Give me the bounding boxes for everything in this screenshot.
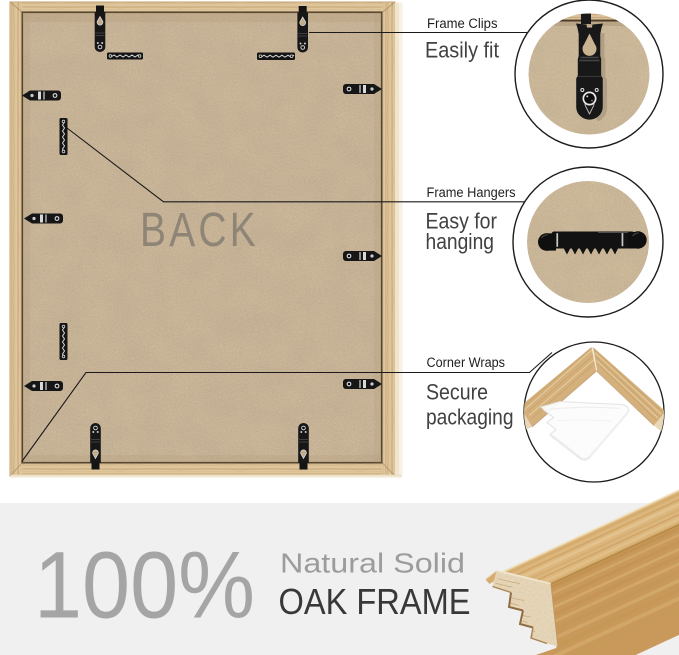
svg-text:BACK: BACK	[140, 204, 259, 257]
svg-text:Frame Clips: Frame Clips	[427, 16, 498, 31]
svg-text:packaging: packaging	[426, 405, 514, 430]
svg-text:Natural Solid: Natural Solid	[280, 548, 465, 579]
svg-text:hanging: hanging	[426, 229, 495, 254]
svg-text:OAK FRAME: OAK FRAME	[279, 581, 471, 622]
svg-text:Corner Wraps: Corner Wraps	[427, 355, 506, 370]
svg-text:Secure: Secure	[426, 380, 488, 405]
svg-text:100%: 100%	[34, 533, 255, 639]
svg-text:Frame Hangers: Frame Hangers	[427, 185, 516, 200]
svg-text:Easily fit: Easily fit	[425, 38, 499, 63]
